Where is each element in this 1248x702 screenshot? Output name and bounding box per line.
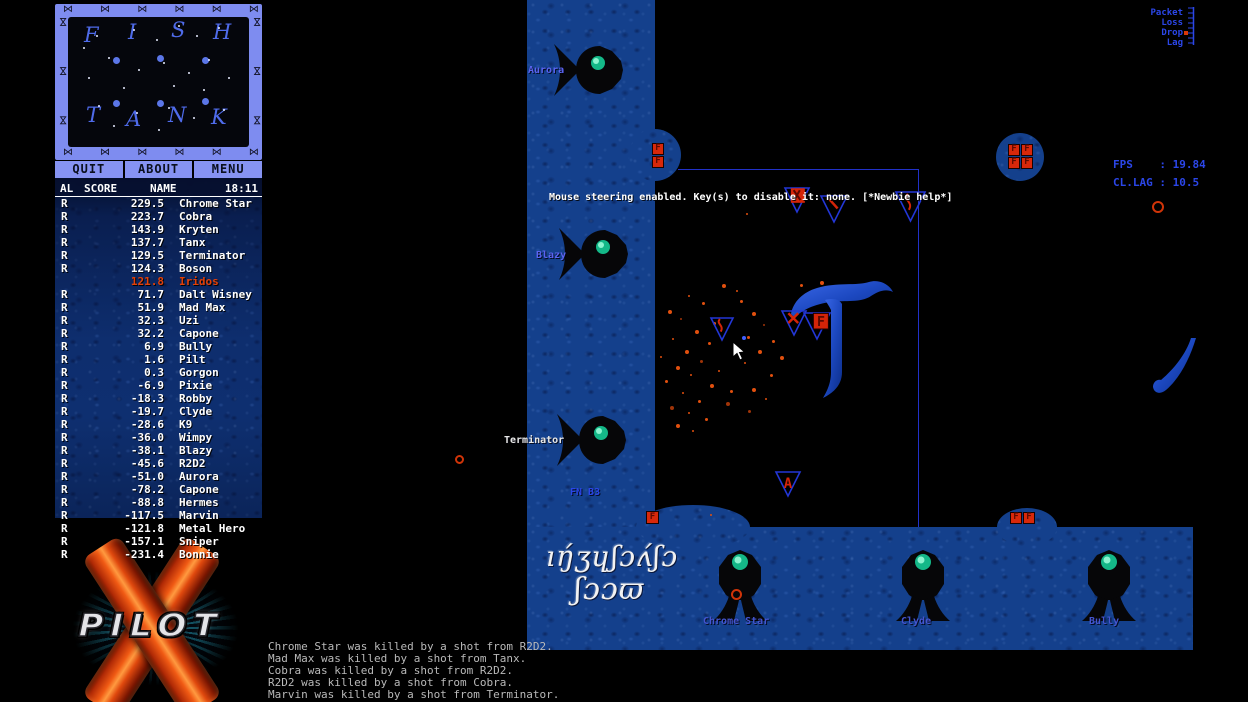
- hud-message: Mouse steering enabled. Key(s) to disabl…: [549, 192, 952, 203]
- debris-spark: [682, 392, 684, 394]
- player-name: Capone: [179, 327, 219, 340]
- score-row: R129.5Terminator: [55, 249, 262, 262]
- player-name: Kryten: [179, 223, 219, 236]
- minimap-fish-border-right: ⋈ ⋈ ⋈ ⋈: [249, 17, 262, 147]
- fish-name-label: Aurora: [528, 65, 564, 76]
- packet-meter-gauge: [1184, 7, 1196, 45]
- player-name: Mad Max: [179, 301, 225, 314]
- score-row: R-88.8Hermes: [55, 496, 262, 509]
- player-score: -36.0: [82, 431, 164, 444]
- fish-graphic: [1081, 548, 1137, 622]
- score-row: R-18.3Robby: [55, 392, 262, 405]
- minimap-blip: [196, 35, 198, 37]
- score-row: R124.3Boson: [55, 262, 262, 275]
- player-score: -51.0: [82, 470, 164, 483]
- score-row: R-231.4Bonnie: [55, 548, 262, 561]
- minimap-blip: [178, 25, 180, 27]
- debris-spark: [698, 400, 701, 403]
- debris-spark: [688, 412, 690, 414]
- fish-graphic: [895, 548, 951, 622]
- minimap-blip: [193, 117, 195, 119]
- drop-label: Drop: [1139, 28, 1183, 38]
- player-score: -18.3: [82, 392, 164, 405]
- player-name: Clyde: [179, 405, 212, 418]
- debris-spark: [690, 374, 692, 376]
- player-score: -38.1: [82, 444, 164, 457]
- fuel-cell: F: [1023, 512, 1035, 524]
- scoreboard-header: AL SCORE NAME 18:11: [55, 180, 262, 197]
- score-row: R-121.8Metal Hero: [55, 522, 262, 535]
- minimap-blip: [173, 85, 175, 87]
- score-row: R-6.9Pixie: [55, 379, 262, 392]
- minimap-blip: [133, 29, 135, 31]
- score-row: R229.5Chrome Star: [55, 197, 262, 210]
- minimap-letter: H: [213, 20, 231, 44]
- debris-spark: [692, 430, 694, 432]
- player-team-flag: R: [55, 496, 82, 509]
- xpilot-screen: ıŋ́ʒɥʃɔʌ́ʃɔ ʃɔɔϖ FN B3 FFFFFFFFF Aurora …: [0, 0, 1248, 702]
- minimap-blip: [156, 39, 158, 41]
- player-team-flag: R: [55, 340, 82, 353]
- debris-spark: [672, 338, 674, 340]
- minimap-blip: [123, 87, 125, 89]
- player-ship-triangle: [709, 316, 735, 342]
- score-row: R-19.7Clyde: [55, 405, 262, 418]
- score-row: R51.9Mad Max: [55, 301, 262, 314]
- player-score: 124.3: [82, 262, 164, 275]
- column-alliance: AL: [60, 182, 73, 195]
- debris-spark: [770, 374, 773, 377]
- debris-spark: [676, 424, 680, 428]
- logo-pilot-text: PILOT: [40, 608, 262, 645]
- client-lag-readout: CL.LAG : 10.5: [1113, 176, 1199, 189]
- score-row: R71.7Dalt Wisney: [55, 288, 262, 301]
- debris-spark: [740, 300, 743, 303]
- player-name: Tanx: [179, 236, 206, 249]
- minimap-fish-border-bottom: ⋈ ⋈ ⋈ ⋈ ⋈ ⋈ ⋈ ⋈: [63, 147, 262, 160]
- player-team-flag: R: [55, 457, 82, 470]
- debris-spark: [708, 342, 711, 345]
- debris-spark: [736, 290, 738, 292]
- player-team-flag: R: [55, 522, 82, 535]
- minimap-blip: [218, 27, 220, 29]
- fuel-cell: F: [1010, 512, 1022, 524]
- player-name: Iridos: [179, 275, 219, 288]
- column-score: SCORE: [84, 182, 117, 195]
- player-team-flag: R: [55, 405, 82, 418]
- svg-text:A: A: [784, 476, 793, 492]
- score-row: R-117.5Marvin: [55, 509, 262, 522]
- player-score: 121.8: [82, 275, 164, 288]
- score-row: R-38.1Blazy: [55, 444, 262, 457]
- ship-triangle-graphic: F: [802, 311, 832, 341]
- player-name: R2D2: [179, 457, 206, 470]
- debris-spark: [763, 324, 765, 326]
- player-score: 32.3: [82, 314, 164, 327]
- debris-spark: [695, 330, 699, 334]
- player-name: Pixie: [179, 379, 212, 392]
- debris-spark: [685, 350, 689, 354]
- minimap-letter: A: [126, 107, 141, 131]
- player-score: 51.9: [82, 301, 164, 314]
- debris-spark: [660, 356, 662, 358]
- svg-text:F: F: [817, 314, 825, 330]
- minimap-blip: [83, 47, 85, 49]
- minimap-wall-bump: [157, 55, 164, 62]
- mouse-cursor-icon: [732, 341, 746, 361]
- score-row: R0.3Gorgon: [55, 366, 262, 379]
- player-score: -117.5: [82, 509, 164, 522]
- fish-name-label: Terminator: [504, 435, 564, 446]
- killfeed-line: Marvin was killed by a shot from Termina…: [268, 689, 618, 701]
- minimap-letter: I: [128, 20, 136, 44]
- fish-name-label: Blazy: [536, 250, 566, 261]
- minimap: ⋈ ⋈ ⋈ ⋈ ⋈ ⋈ ⋈ ⋈ ⋈ ⋈ ⋈ ⋈ ⋈ ⋈ ⋈ ⋈ ⋈ ⋈ ⋈ ⋈ …: [55, 4, 262, 160]
- minimap-letter: S: [171, 18, 185, 42]
- player-score: -78.2: [82, 483, 164, 496]
- score-row: 121.8Iridos: [55, 275, 262, 288]
- fuel-cell: F: [1008, 157, 1020, 169]
- player-name: Bully: [179, 340, 212, 353]
- debris-spark: [765, 398, 767, 400]
- minimap-blip: [158, 129, 160, 131]
- player-name: Pilt: [179, 353, 206, 366]
- player-team-flag: R: [55, 288, 82, 301]
- minimap-blip: [96, 35, 98, 37]
- minimap-letter: N: [168, 103, 186, 127]
- debris-spark: [746, 213, 748, 215]
- ship-triangle-graphic: [709, 316, 735, 342]
- score-row: R1.6Pilt: [55, 353, 262, 366]
- score-row: R32.3Uzi: [55, 314, 262, 327]
- player-team-flag: R: [55, 327, 82, 340]
- player-score: -121.8: [82, 522, 164, 535]
- score-row: R143.9Kryten: [55, 223, 262, 236]
- player-score: 143.9: [82, 223, 164, 236]
- minimap-blip: [203, 89, 205, 91]
- player-name: Terminator: [179, 249, 245, 262]
- player-name: Wimpy: [179, 431, 212, 444]
- scoreboard-rows: R229.5Chrome StarR223.7CobraR143.9Kryten…: [55, 197, 262, 562]
- player-name: Chrome Star: [179, 197, 252, 210]
- ship-triangle-graphic: A: [774, 470, 802, 498]
- fuel-cell: F: [1021, 157, 1033, 169]
- ball-ring: [1152, 201, 1164, 213]
- minimap-fish-border-top: ⋈ ⋈ ⋈ ⋈ ⋈ ⋈ ⋈ ⋈: [63, 4, 262, 17]
- fuel-cell: F: [652, 143, 664, 155]
- player-team-flag: R: [55, 223, 82, 236]
- player-score: 229.5: [82, 197, 164, 210]
- score-row: R223.7Cobra: [55, 210, 262, 223]
- fish-sprite: [1081, 548, 1137, 626]
- menu-button[interactable]: MENU: [194, 161, 262, 178]
- debris-spark: [726, 402, 730, 406]
- fish-sprite: [712, 548, 768, 626]
- minimap-blip: [98, 105, 100, 107]
- score-row: R-45.6R2D2: [55, 457, 262, 470]
- fuel-cell: F: [1021, 144, 1033, 156]
- player-team-flag: R: [55, 509, 82, 522]
- score-row: R137.7Tanx: [55, 236, 262, 249]
- player-score: 71.7: [82, 288, 164, 301]
- fuel-cell: F: [652, 156, 664, 168]
- debris-spark: [718, 370, 720, 372]
- debris-spark: [744, 362, 746, 364]
- minimap-blip: [88, 77, 90, 79]
- player-name: Hermes: [179, 496, 219, 509]
- player-name: Aurora: [179, 470, 219, 483]
- player-score: -28.6: [82, 418, 164, 431]
- player-team-flag: R: [55, 418, 82, 431]
- player-score: 223.7: [82, 210, 164, 223]
- player-team-flag: R: [55, 470, 82, 483]
- debris-spark: [748, 410, 751, 413]
- player-score: 129.5: [82, 249, 164, 262]
- clock: 18:11: [225, 182, 258, 195]
- debris-spark: [700, 360, 703, 363]
- column-name: NAME: [150, 182, 177, 195]
- debris-spark: [752, 388, 756, 392]
- debris-spark: [710, 384, 714, 388]
- player-score: -6.9: [82, 379, 164, 392]
- packet-label: Packet: [1139, 8, 1183, 18]
- player-score: 32.2: [82, 327, 164, 340]
- about-button[interactable]: ABOUT: [125, 161, 193, 178]
- player-name: Capone: [179, 483, 219, 496]
- debris-spark: [800, 284, 803, 287]
- player-team-flag: R: [55, 392, 82, 405]
- player-name: K9: [179, 418, 192, 431]
- player-team-flag: R: [55, 197, 82, 210]
- debris-spark: [705, 418, 708, 421]
- player-team-flag: R: [55, 353, 82, 366]
- fish-sprite: [557, 226, 631, 286]
- fish-graphic: [712, 548, 768, 622]
- minimap-wall-bump: [113, 100, 120, 107]
- player-score: 137.7: [82, 236, 164, 249]
- debris-spark: [780, 356, 784, 360]
- player-team-flag: R: [55, 249, 82, 262]
- player-team-flag: R: [55, 535, 82, 548]
- fish-name-label: Clyde: [901, 616, 931, 627]
- fuel-cell: F: [646, 511, 659, 524]
- debris-spark: [688, 295, 690, 297]
- fps-readout: FPS : 19.84: [1113, 158, 1206, 171]
- minimap-blip: [208, 59, 210, 61]
- debris-spark: [747, 336, 750, 339]
- player-score: -19.7: [82, 405, 164, 418]
- score-row: R6.9Bully: [55, 340, 262, 353]
- player-name: Robby: [179, 392, 212, 405]
- debris-spark: [722, 284, 726, 288]
- fish-name-label: Chrome Star: [703, 616, 769, 627]
- player-name: Boson: [179, 262, 212, 275]
- minimap-blip: [138, 69, 140, 71]
- loss-label: Loss: [1139, 18, 1183, 28]
- player-name: Gorgon: [179, 366, 219, 379]
- lag-label: Lag: [1139, 38, 1183, 48]
- player-team-flag: R: [55, 483, 82, 496]
- player-score: -45.6: [82, 457, 164, 470]
- player-team-flag: R: [55, 262, 82, 275]
- player-score: 1.6: [82, 353, 164, 366]
- player-team-flag: R: [55, 366, 82, 379]
- fish-sprite: [555, 412, 629, 472]
- debris-spark: [670, 406, 674, 410]
- score-row: R-36.0Wimpy: [55, 431, 262, 444]
- minimap-fish-border-left: ⋈ ⋈ ⋈ ⋈: [55, 17, 68, 147]
- player-team-flag: R: [55, 548, 82, 561]
- quit-button[interactable]: QUIT: [55, 161, 123, 178]
- fish-name-label: Bully: [1089, 616, 1119, 627]
- score-row: R-157.1Sniper: [55, 535, 262, 548]
- debris-spark: [680, 318, 682, 320]
- minimap-wall-bump: [202, 98, 209, 105]
- ball-ring: [455, 455, 464, 464]
- debris-spark: [772, 340, 775, 343]
- minimap-blip: [163, 62, 165, 64]
- player-name: Sniper: [179, 535, 219, 548]
- player-name: Blazy: [179, 444, 212, 457]
- player-score: 6.9: [82, 340, 164, 353]
- player-score: -157.1: [82, 535, 164, 548]
- minimap-wall-bump: [113, 57, 120, 64]
- player-name: Dalt Wisney: [179, 288, 252, 301]
- player-name: Bonnie: [179, 548, 219, 561]
- player-team-flag: R: [55, 301, 82, 314]
- player-team-flag: R: [55, 236, 82, 249]
- player-score: -231.4: [82, 548, 164, 561]
- debris-spark: [752, 312, 756, 316]
- player-name: Uzi: [179, 314, 199, 327]
- player-score: -88.8: [82, 496, 164, 509]
- packet-meter-labels: Packet Loss Drop Lag: [1139, 8, 1183, 48]
- ball-ring: [731, 589, 742, 600]
- fish-graphic: [555, 412, 629, 468]
- score-row: R-28.6K9: [55, 418, 262, 431]
- kill-feed: Chrome Star was killed by a shot from R2…: [268, 641, 618, 701]
- fuel-cell: F: [1008, 144, 1020, 156]
- player-name: Metal Hero: [179, 522, 245, 535]
- player-ship-triangle: F: [802, 311, 832, 341]
- debris-spark: [758, 350, 762, 354]
- score-row: R-78.2Capone: [55, 483, 262, 496]
- player-team-flag: R: [55, 444, 82, 457]
- player-team-flag: R: [55, 210, 82, 223]
- player-name: Cobra: [179, 210, 212, 223]
- minimap-view: FISHTANK: [68, 17, 249, 147]
- player-team-flag: R: [55, 379, 82, 392]
- minimap-blip: [113, 125, 115, 127]
- score-row: R32.2Capone: [55, 327, 262, 340]
- player-ship-triangle: A: [774, 470, 802, 498]
- player-team-flag: R: [55, 314, 82, 327]
- minimap-blip: [136, 112, 138, 114]
- minimap-blip: [108, 57, 110, 59]
- debris-spark: [710, 514, 712, 516]
- debris-spark: [820, 281, 824, 285]
- menu-bar: QUIT ABOUT MENU: [55, 161, 262, 178]
- fish-graphic: [557, 226, 631, 282]
- bullet-dot: [742, 336, 746, 340]
- minimap-blip: [188, 72, 190, 74]
- minimap-wall-bump: [157, 100, 164, 107]
- debris-spark: [676, 366, 680, 370]
- debris-spark: [702, 302, 705, 305]
- minimap-blip: [223, 109, 225, 111]
- fish-sprite: [895, 548, 951, 626]
- debris-spark: [665, 380, 668, 383]
- minimap-blip: [228, 77, 230, 79]
- minimap-blip: [168, 107, 170, 109]
- player-team-flag: R: [55, 431, 82, 444]
- player-team-flag: [55, 275, 82, 288]
- debris-spark: [668, 310, 672, 314]
- player-score: 0.3: [82, 366, 164, 379]
- player-name: Marvin: [179, 509, 219, 522]
- score-row: R-51.0Aurora: [55, 470, 262, 483]
- debris-spark: [730, 390, 733, 393]
